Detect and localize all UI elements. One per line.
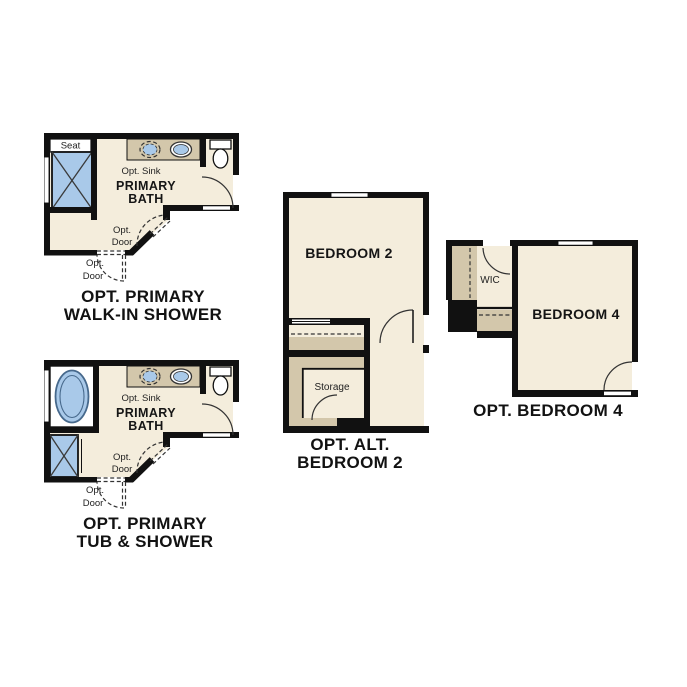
storage-room xyxy=(302,368,364,418)
door-leaf xyxy=(203,433,230,436)
opt-sink-label: Opt. Sink xyxy=(121,393,160,404)
opt-sink-label: Opt. Sink xyxy=(121,166,160,177)
window xyxy=(331,193,368,197)
window xyxy=(558,241,593,245)
caption-bedroom4: OPT. BEDROOM 4 xyxy=(448,402,648,420)
wic-shelf-horizontal xyxy=(477,310,512,331)
window xyxy=(44,370,49,422)
door-leaf xyxy=(604,392,631,396)
caption-line: OPT. ALT. xyxy=(272,436,428,454)
caption-line: OPT. BEDROOM 4 xyxy=(448,402,648,420)
opt-door-inner-label-line2: Door xyxy=(112,237,133,248)
room-label-line2: BATH xyxy=(128,192,163,206)
opt-door-outer-label-line1: Opt. xyxy=(86,258,104,269)
tub-icon xyxy=(50,366,94,427)
wic-shelf-vertical xyxy=(452,246,477,300)
caption-walk-in-shower: OPT. PRIMARY WALK-IN SHOWER xyxy=(33,288,253,323)
window xyxy=(44,157,49,203)
plan-walk-in-shower: Seat Opt. Sink PRIMARY BATH Opt. Door Op… xyxy=(44,133,239,288)
shower-icon xyxy=(50,435,82,477)
caption-line: WALK-IN SHOWER xyxy=(33,306,253,324)
wic-label: WIC xyxy=(480,275,499,286)
plan-bedroom4: WIC BEDROOM 4 xyxy=(446,238,640,400)
opt-door-inner-label-line2: Door xyxy=(112,464,133,475)
sink-icon xyxy=(171,142,192,157)
room-label-line1: PRIMARY xyxy=(116,406,176,420)
opt-door-inner-label-line1: Opt. xyxy=(113,225,131,236)
opt-door-outer-label-line2: Door xyxy=(83,498,104,509)
plan-tub-shower: Opt. Sink PRIMARY BATH Opt. Door Opt. Do… xyxy=(44,360,239,515)
caption-alt-bedroom2: OPT. ALT. BEDROOM 2 xyxy=(272,436,428,471)
caption-tub-shower: OPT. PRIMARY TUB & SHOWER xyxy=(35,515,255,550)
plan-alt-bedroom2: BEDROOM 2 Storage xyxy=(283,189,430,434)
closet-shelf xyxy=(289,337,364,350)
room-label: BEDROOM 4 xyxy=(532,306,620,322)
storage-label: Storage xyxy=(314,382,349,393)
opt-door-inner-label-line1: Opt. xyxy=(113,452,131,463)
door-leaf xyxy=(203,206,230,209)
floorplan-options-sheet: Seat Opt. Sink PRIMARY BATH Opt. Door Op… xyxy=(0,0,687,687)
opt-door-outer-label-line2: Door xyxy=(83,271,104,282)
opt-door-outer-label-line1: Opt. xyxy=(86,485,104,496)
caption-line: OPT. PRIMARY xyxy=(35,515,255,533)
room-label: BEDROOM 2 xyxy=(305,245,393,261)
caption-line: TUB & SHOWER xyxy=(35,533,255,551)
room-label-line1: PRIMARY xyxy=(116,179,176,193)
room-label-line2: BATH xyxy=(128,419,163,433)
caption-line: OPT. PRIMARY xyxy=(33,288,253,306)
walk-in-shower-icon xyxy=(52,152,92,209)
caption-line: BEDROOM 2 xyxy=(272,454,428,472)
seat-label: Seat xyxy=(61,141,81,152)
sink-icon xyxy=(171,369,192,384)
